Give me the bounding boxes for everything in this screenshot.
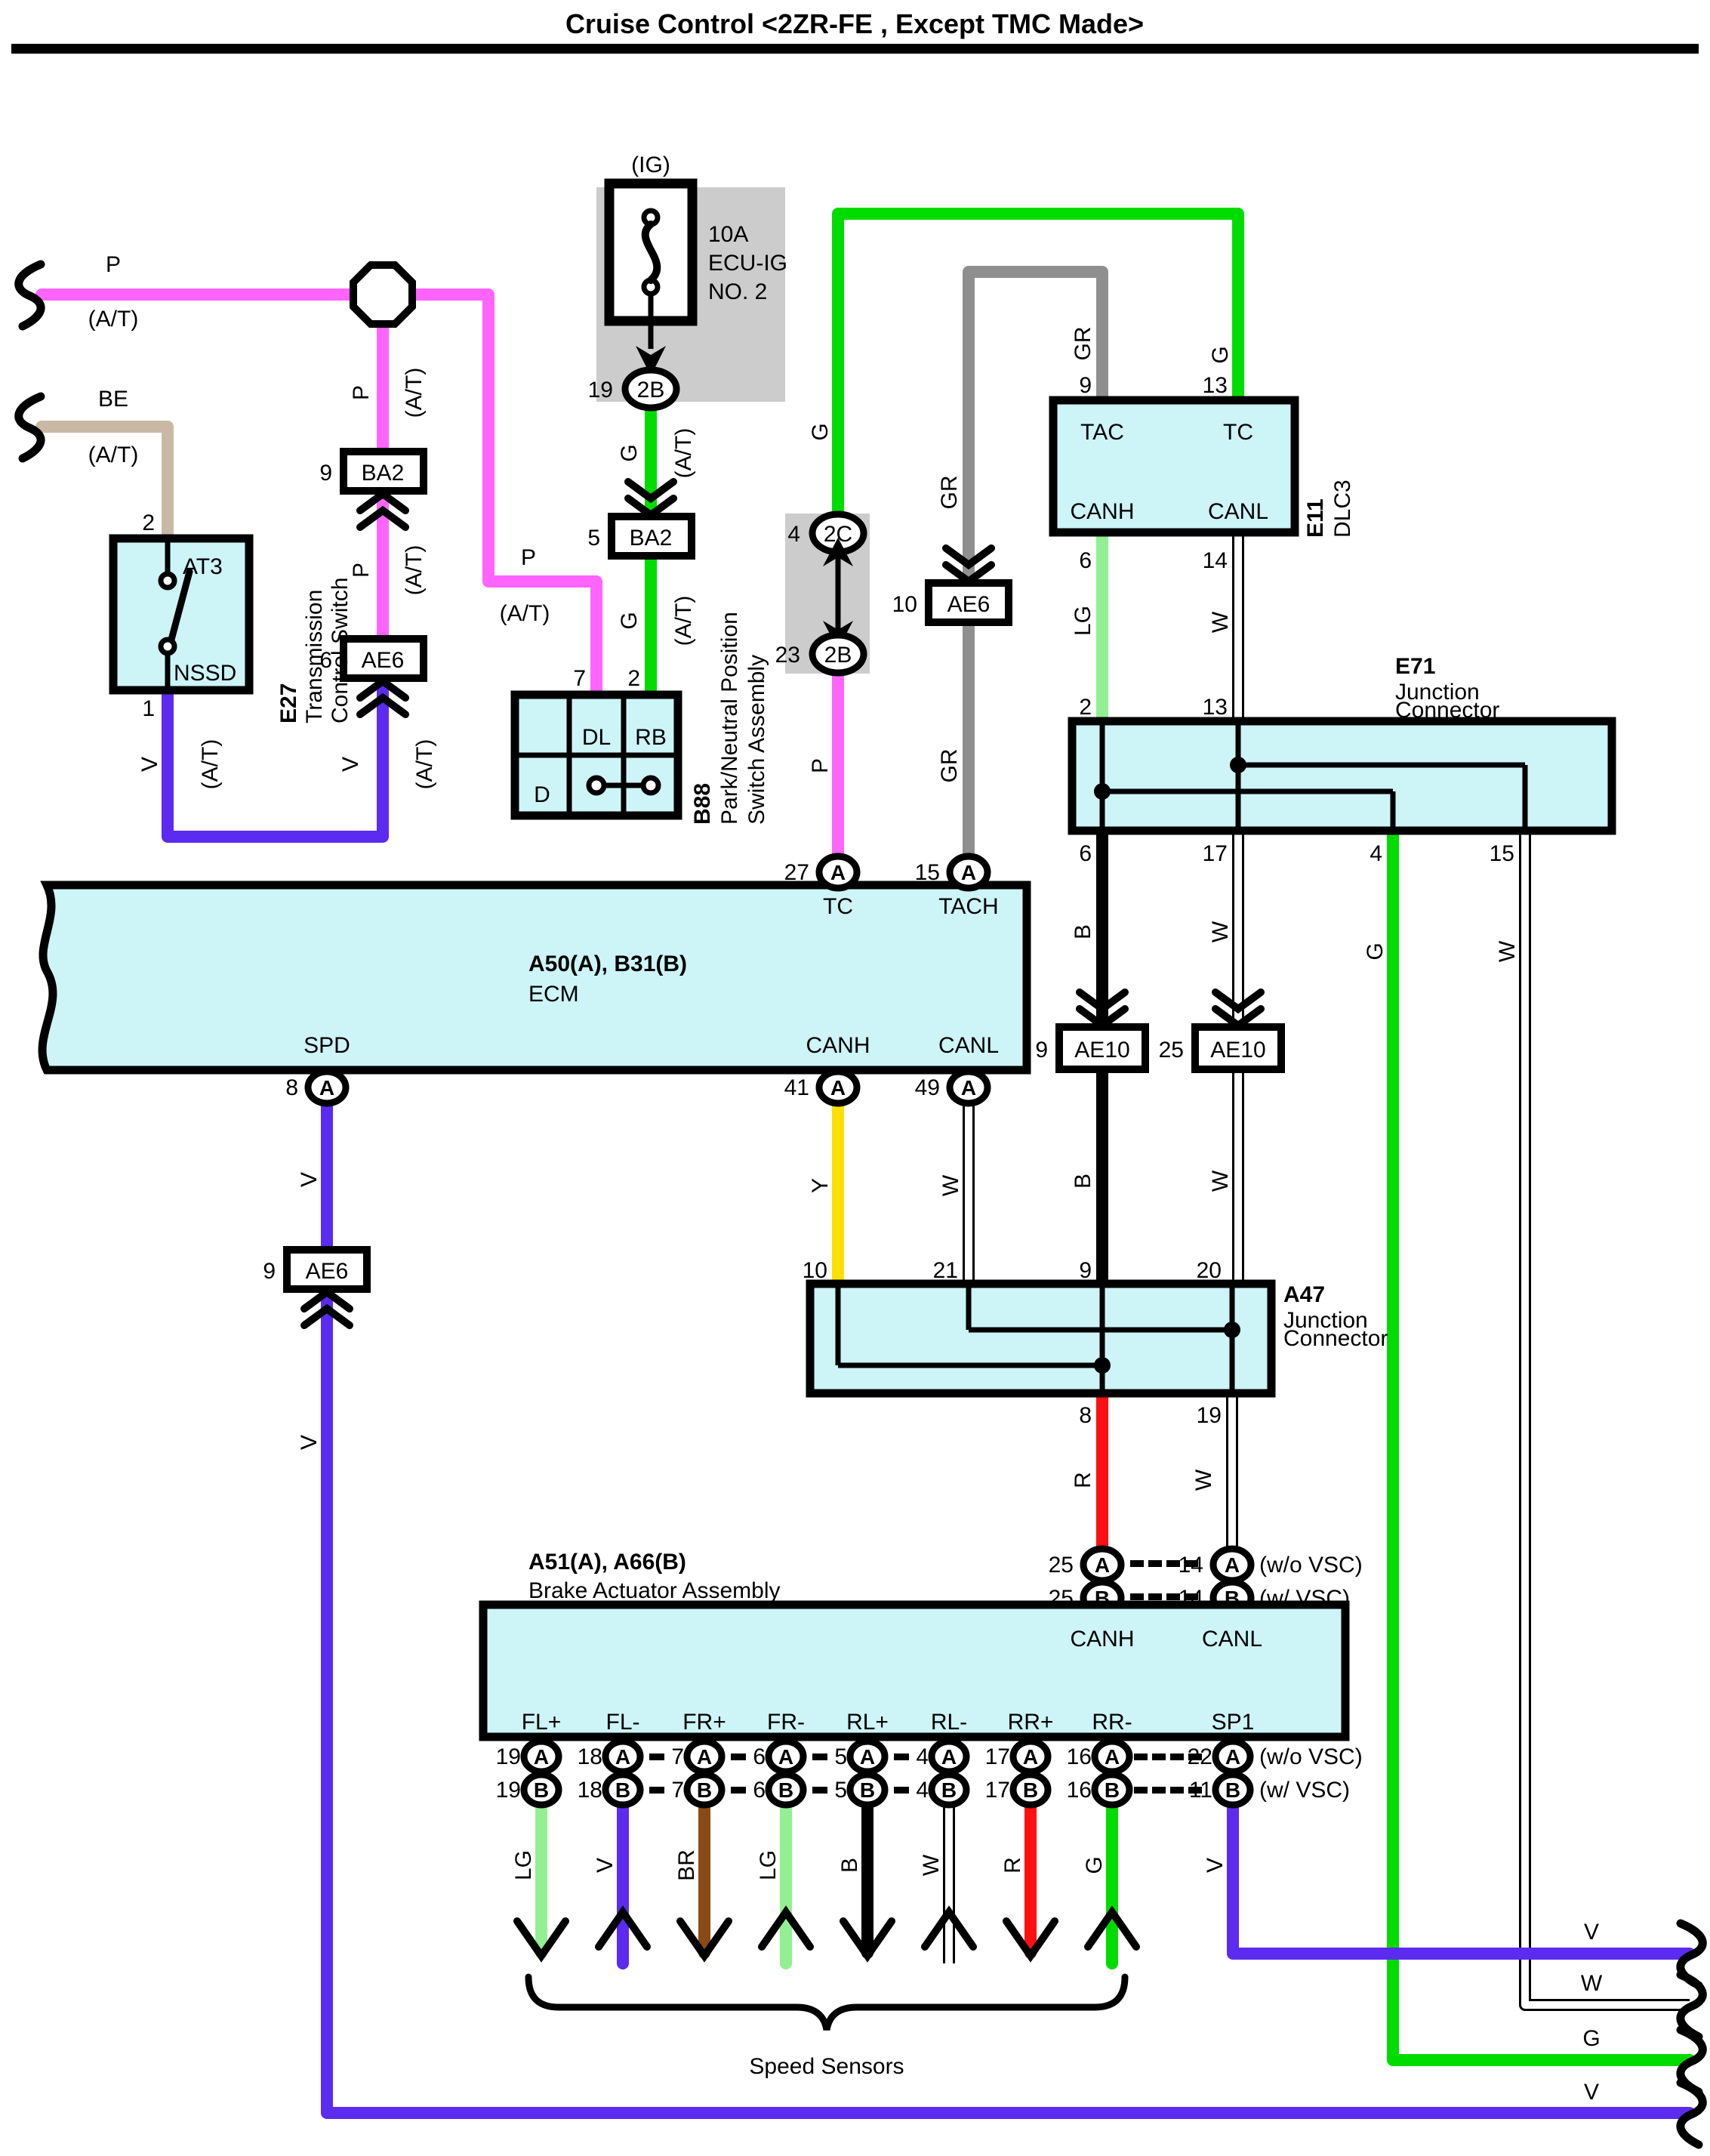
pin-letter: B <box>860 1778 875 1802</box>
connector-2b-label: 2B <box>824 643 852 668</box>
dash-group <box>1130 1560 1198 1600</box>
wire-suffix: (A/T) <box>88 307 139 332</box>
wire-code: B <box>1071 924 1095 939</box>
fuse-name-2: NO. 2 <box>708 279 767 304</box>
wire-code: P <box>808 758 833 773</box>
pin-number: 23 <box>775 643 800 668</box>
component-id: A47 <box>1283 1282 1325 1307</box>
wire-code: W <box>1208 611 1233 633</box>
pin-number: 19 <box>496 1744 521 1769</box>
wire-code: B <box>1071 1174 1095 1189</box>
wire-code: G <box>617 444 642 461</box>
wire-code: P <box>521 545 536 570</box>
pin-letter: B <box>1023 1778 1038 1802</box>
cell-label: RB <box>635 725 667 750</box>
contact-point-bottom <box>161 640 174 653</box>
channel-label: RR+ <box>1008 1710 1054 1735</box>
wire-code: LG <box>756 1850 781 1880</box>
pin-number: 6 <box>753 1744 766 1769</box>
pin-number: 6 <box>1079 841 1092 866</box>
wire-code: BE <box>98 387 128 412</box>
pin-number: 9 <box>1079 1258 1092 1283</box>
wire-code: BR <box>674 1849 699 1881</box>
pin-number: 2 <box>1079 695 1092 720</box>
connector-label: AE10 <box>1074 1038 1129 1063</box>
wire-code: P <box>349 563 374 578</box>
connector-pin: 5 <box>587 526 600 551</box>
wire-code: P <box>106 252 121 277</box>
channel-label: RL+ <box>846 1710 889 1735</box>
wire-code: GR <box>937 749 962 783</box>
fuse-ig-label: (IG) <box>631 153 670 177</box>
component-id: A51(A), A66(B) <box>528 1550 686 1575</box>
wire-suffix: (A/T) <box>412 739 437 790</box>
ecm: A50(A), B31(B) ECM TC TACH SPD CANH CANL… <box>42 856 1027 1196</box>
fuse-rating: 10A <box>708 222 748 247</box>
wiring-diagram-page: Cruise Control <2ZR-FE , Except TMC Made… <box>0 0 1710 2156</box>
wire-g-long <box>1393 831 1690 2060</box>
channel-label: FR- <box>767 1710 805 1735</box>
pin-letter: A <box>534 1745 549 1769</box>
component-name-2: Switch Assembly <box>744 655 769 825</box>
ecm-body <box>42 885 1027 1070</box>
connector-pin: 9 <box>319 461 332 486</box>
component-id: A50(A), B31(B) <box>528 952 687 976</box>
a47-body <box>810 1284 1271 1393</box>
channel-label: RL- <box>931 1710 967 1735</box>
contact-point-top <box>161 574 174 588</box>
cruise-control-wiring-diagram: Cruise Control <2ZR-FE , Except TMC Made… <box>0 0 1710 2156</box>
pin-number: 6 <box>1079 548 1092 573</box>
bottom-right-labels: V W G V <box>1581 1920 1603 2105</box>
component-name-2: Connector <box>1395 698 1499 723</box>
tachometer-circuit: AE6 10 GR GR GR G <box>892 327 1233 783</box>
connector-pin: 10 <box>892 592 917 617</box>
pin-number: 15 <box>915 860 940 885</box>
pin-letter: B <box>615 1778 630 1802</box>
brace <box>528 1977 1125 2030</box>
pin-number: 19 <box>1197 1403 1222 1428</box>
pin-number: 5 <box>834 1744 847 1769</box>
pin-number: 17 <box>1203 841 1228 866</box>
pin-letter: A <box>961 861 976 884</box>
component-name-1: Park/Neutral Position <box>717 612 742 825</box>
pin-letter: B <box>778 1778 793 1802</box>
pin-number: 4 <box>787 522 800 547</box>
channel-label: FL- <box>606 1710 640 1735</box>
pin-number: 21 <box>933 1258 958 1283</box>
pin-number: 16 <box>1067 1778 1092 1803</box>
connector-label: AE6 <box>306 1259 349 1284</box>
wire-suffix: (A/T) <box>671 596 696 646</box>
a47-junction-connector: 10 21 9 20 A47 Junction Connector 8 19 R… <box>803 1258 1388 1491</box>
pin-letter: A <box>961 1076 976 1100</box>
component-name: DLC3 <box>1330 480 1355 538</box>
contact-point <box>643 778 658 793</box>
wire-code: W <box>1191 1469 1216 1491</box>
pin-number: 6 <box>753 1778 766 1803</box>
wire-suffix: (A/T) <box>88 443 139 467</box>
pin-label: TC <box>823 894 853 919</box>
junction-dot <box>1230 757 1246 773</box>
pin-number: 27 <box>784 860 809 885</box>
wire-code: GR <box>1071 327 1095 361</box>
pin-label: CANH <box>806 1033 870 1058</box>
header: Cruise Control <2ZR-FE , Except TMC Made… <box>11 8 1699 54</box>
pin-number: 15 <box>1490 841 1514 866</box>
wire-suffix: (A/T) <box>671 428 696 479</box>
connector-label: AE6 <box>362 648 405 673</box>
wire-code: LG <box>511 1850 536 1880</box>
junction-dot <box>1094 1357 1111 1374</box>
pin-number: 18 <box>578 1744 602 1769</box>
pin-letter: A <box>319 1076 334 1100</box>
pin-letter: B <box>534 1778 549 1802</box>
pin-letter: B <box>1225 1778 1240 1802</box>
e71-body <box>1072 721 1612 831</box>
pin-number: 7 <box>671 1778 684 1803</box>
wire-code: R <box>1071 1472 1095 1488</box>
vsc-annotation: (w/o VSC) <box>1259 1553 1363 1578</box>
pin-number: 4 <box>916 1778 929 1803</box>
connector-label: AE6 <box>947 592 991 617</box>
connector-label: BA2 <box>630 526 673 551</box>
pin-letter: A <box>860 1745 875 1769</box>
pin-letter: A <box>778 1745 793 1769</box>
pin-letter: A <box>830 1076 846 1100</box>
contact-top-label: AT3 <box>183 554 223 579</box>
pin-letter: A <box>697 1745 712 1769</box>
brake-actuator-assembly: A51(A), A66(B) Brake Actuator Assembly A… <box>483 1549 1363 1805</box>
wire-w-long-inner <box>1525 831 1690 2005</box>
cell-label: D <box>534 782 550 807</box>
connector-ba2-5: BA2 5 G (A/T) G (A/T) <box>587 428 696 646</box>
wire-code: V <box>1584 2080 1599 2105</box>
pin-number: 18 <box>578 1778 602 1803</box>
wire-w-long-outer <box>1525 831 1690 2005</box>
junction-dot <box>1094 783 1111 800</box>
wire-code: G <box>1582 2026 1600 2051</box>
pin-number: 5 <box>834 1778 847 1803</box>
channel-label: FR+ <box>682 1710 726 1735</box>
component-name-1: Transmission <box>302 590 327 723</box>
pin-letter: A <box>941 1745 957 1769</box>
wire-code: LG <box>1071 606 1095 636</box>
wire-code: G <box>1082 1856 1107 1874</box>
junction-dot <box>1224 1322 1240 1338</box>
pin-letter: A <box>830 861 846 884</box>
component-name: Brake Actuator Assembly <box>528 1578 781 1603</box>
component-id: E71 <box>1395 654 1435 679</box>
channel-label: SP1 <box>1212 1710 1255 1735</box>
connector-ba2-9: BA2 9 <box>319 452 424 527</box>
pin-number: 19 <box>496 1778 521 1803</box>
pin-number: 49 <box>915 1075 940 1100</box>
wire-suffix: (A/T) <box>402 545 427 596</box>
wire-code: G <box>617 612 642 629</box>
speed-sensors-label: Speed Sensors <box>749 2054 904 2079</box>
pin-label: SPD <box>303 1033 350 1058</box>
pin-label: TC <box>1223 420 1253 445</box>
pin-number: 20 <box>1197 1258 1222 1283</box>
connector-pin: 9 <box>1035 1038 1048 1063</box>
cell-label: DL <box>582 725 611 750</box>
component-id: E11 <box>1303 498 1328 538</box>
channel-label: RR- <box>1092 1710 1132 1735</box>
pin-number: 17 <box>985 1778 1010 1803</box>
wire-code: G <box>1363 942 1388 960</box>
pin-number: 16 <box>1067 1744 1092 1769</box>
pin-label: CANL <box>938 1033 999 1058</box>
pin-label: CANH <box>1070 1627 1134 1652</box>
pin-number: 9 <box>1079 373 1092 398</box>
pin-letter: A <box>1225 1745 1240 1769</box>
wire-suffix: (A/T) <box>198 739 223 790</box>
vsc-annotation: (w/ VSC) <box>1259 1778 1350 1803</box>
wire-code: W <box>1208 921 1233 942</box>
wire-code: W <box>1495 940 1520 962</box>
contact-bottom-label: NSSD <box>174 661 236 686</box>
pin-letter: B <box>941 1778 957 1802</box>
pin-number: 1 <box>142 696 155 721</box>
pin-number: 17 <box>985 1744 1010 1769</box>
channel-label: FL+ <box>522 1710 562 1735</box>
wire-code: P <box>349 385 374 400</box>
wire-code: W <box>919 1854 944 1876</box>
pin-number: 14 <box>1203 548 1228 573</box>
pin-label: TAC <box>1080 420 1124 445</box>
wire-code: G <box>1208 346 1233 363</box>
connector-label: BA2 <box>362 461 405 486</box>
vsc-annotation: (w/o VSC) <box>1259 1744 1363 1769</box>
pin-letter: A <box>615 1745 630 1769</box>
connector-ae6-9: AE6 9 V V <box>263 1172 367 1450</box>
pin-letter: A <box>1023 1745 1038 1769</box>
pin-letter: A <box>1095 1553 1110 1577</box>
pnp-switch-assembly: DL RB D 7 2 B88 Park/Neutral Position Sw… <box>515 612 769 825</box>
pin-letter: B <box>1105 1778 1120 1802</box>
wire-code: V <box>593 1858 618 1873</box>
connector-ae10-25: AE10 25 <box>1159 992 1281 1069</box>
wire-code: Y <box>808 1178 833 1193</box>
contact-point <box>589 778 604 793</box>
wire-code: V <box>338 757 363 772</box>
wire-code: R <box>1000 1857 1025 1874</box>
pin-number: 4 <box>1370 841 1382 866</box>
wire-code: W <box>1208 1170 1233 1192</box>
connector-ae10-9: AE10 9 <box>1035 992 1145 1069</box>
pin-number: 10 <box>803 1258 827 1283</box>
connector-label: AE10 <box>1210 1038 1265 1063</box>
component-name: ECM <box>528 982 579 1007</box>
wire-code: W <box>938 1174 963 1196</box>
wires <box>42 214 1690 2113</box>
fuse-pin-number: 19 <box>588 378 613 403</box>
wire-code: V <box>297 1172 322 1187</box>
wire-code: W <box>1581 1971 1603 1996</box>
component-id: E27 <box>276 683 301 723</box>
pin-label: CANL <box>1208 499 1268 524</box>
pin-number: 2 <box>142 510 155 535</box>
pin-number: 8 <box>1079 1403 1092 1428</box>
pin-number: 13 <box>1203 373 1228 398</box>
wire-code: V <box>297 1435 322 1450</box>
wire-code: GR <box>937 476 962 510</box>
pin-number: 7 <box>573 666 586 691</box>
wire-code: V <box>137 757 162 772</box>
pin-letter: A <box>1105 1745 1120 1769</box>
connector-2b-label: 2B <box>637 378 665 403</box>
wire-suffix: (A/T) <box>500 601 550 626</box>
component-name-2: Control Switch <box>328 578 353 723</box>
pin-number: 41 <box>784 1075 809 1100</box>
wire-code: V <box>1203 1858 1228 1873</box>
page-title: Cruise Control <2ZR-FE , Except TMC Made… <box>565 8 1144 39</box>
wire-code: G <box>808 423 833 440</box>
component-name-2: Connector <box>1283 1326 1388 1351</box>
pin-label: TACH <box>938 894 998 919</box>
pin-number: 4 <box>916 1744 929 1769</box>
octagon-junction-icon <box>353 265 412 324</box>
connector-pin: 25 <box>1159 1038 1184 1063</box>
wire-suffix: (A/T) <box>402 368 427 418</box>
pin-number: 25 <box>1049 1553 1074 1578</box>
pin-letter: A <box>1225 1553 1240 1577</box>
component-id: B88 <box>690 783 715 825</box>
wire-v-sp1 <box>1233 1737 1690 1954</box>
pin-number: 2 <box>627 666 640 691</box>
pin-number: 7 <box>671 1744 684 1769</box>
fuse-name-1: ECU-IG <box>708 251 787 276</box>
wire-code: B <box>837 1858 862 1873</box>
connector-pin: 9 <box>263 1259 276 1284</box>
pin-letter: B <box>697 1778 712 1802</box>
wire-code: V <box>1584 1920 1599 1945</box>
pin-label: CANL <box>1202 1627 1262 1652</box>
pin-number: 13 <box>1203 695 1228 720</box>
title-rule <box>11 44 1699 54</box>
pin-label: CANH <box>1070 499 1134 524</box>
pin-number: 8 <box>285 1075 298 1100</box>
